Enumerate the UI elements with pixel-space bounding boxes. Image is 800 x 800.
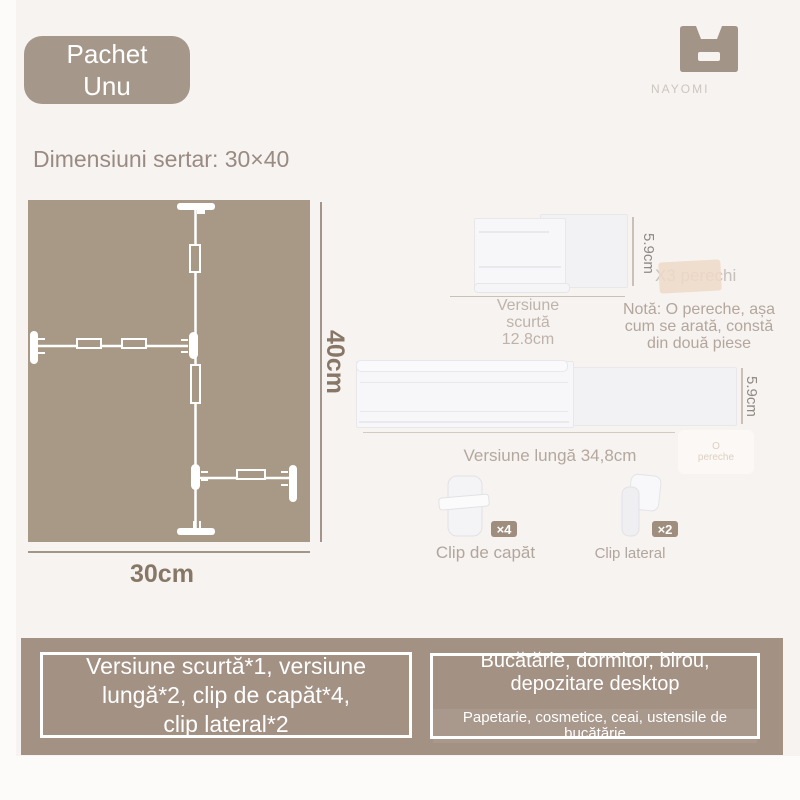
pair-watermark: O pereche (678, 430, 754, 474)
drawer-diagram (28, 200, 310, 542)
long-height-label: 5.9cm (743, 376, 760, 417)
divider-layout-drawing (28, 200, 310, 542)
product-infographic: Pachet Unu NAYOMI Dimensiuni sertar: 30×… (0, 0, 800, 800)
long-version-caption: Versiune lungă 34,8cm (450, 446, 650, 466)
page-title: Dimensiuni sertar: 30×40 (33, 146, 289, 173)
end-clip-icon (438, 474, 492, 545)
short-divider-lip (474, 283, 570, 293)
width-dimension-line (28, 551, 310, 553)
long-caption-line (363, 432, 675, 433)
side-clip-label: Clip lateral (585, 545, 675, 562)
usage-subtitle: Papetarie, cosmetice, ceai, ustensile de… (433, 709, 757, 743)
short-divider-inner-piece (474, 218, 566, 290)
end-clip-label: Clip de capăt (433, 543, 538, 563)
end-clip-count-badge: ×4 (491, 521, 517, 537)
side-clip-count-badge: ×2 (652, 521, 678, 537)
short-height-dim-line (632, 217, 634, 286)
brand-name: NAYOMI (651, 82, 709, 96)
short-version-caption: Versiune scurtă 12.8cm (468, 297, 588, 348)
drawer-width-label: 30cm (130, 560, 194, 589)
long-divider-top-rail (356, 360, 568, 372)
long-divider-outer-piece (570, 367, 737, 426)
usage-title: Bucătărie, dormitor, birou, depozitare d… (481, 650, 710, 696)
beige-sticker (658, 259, 722, 293)
drawer-height-label: 40cm (320, 330, 349, 394)
note-text: Notă: O pereche, așa cum se arată, const… (608, 301, 790, 352)
drawer-box-icon (680, 26, 738, 77)
package-badge: Pachet Unu (24, 36, 190, 104)
package-contents-box: Versiune scurtă*1, versiune lungă*2, cli… (40, 652, 412, 738)
usage-box: Bucătărie, dormitor, birou, depozitare d… (430, 653, 760, 739)
